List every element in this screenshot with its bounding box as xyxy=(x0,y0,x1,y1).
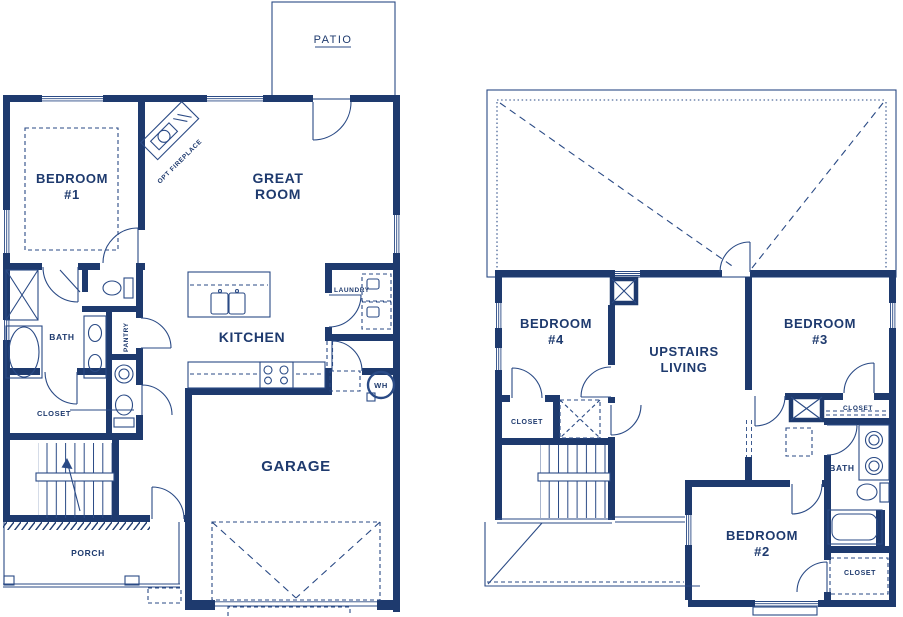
floor-plan-svg: PATIO BEDROOM #1 GREAT ROOM OPT FIREPLAC… xyxy=(0,0,903,617)
bath-label: BATH xyxy=(49,332,74,342)
laundry-label: LAUNDRY xyxy=(334,287,370,294)
upstairs-living-label: UPSTAIRS xyxy=(649,344,719,359)
closet-bedroom3-label: CLOSET xyxy=(843,405,873,412)
closet-bedroom4-label: CLOSET xyxy=(511,419,543,426)
bedroom2-number: #2 xyxy=(754,544,770,559)
bedroom3-number: #3 xyxy=(812,332,828,347)
bedroom4-number: #4 xyxy=(548,332,564,347)
upstairs-bath-label: BATH xyxy=(829,463,854,473)
great-room-label2: ROOM xyxy=(255,186,301,202)
bedroom2-step xyxy=(753,607,817,615)
bedroom1-label: BEDROOM xyxy=(36,171,108,186)
first-floor-plan: PATIO BEDROOM #1 GREAT ROOM OPT FIREPLAC… xyxy=(3,2,400,616)
porch-area xyxy=(3,522,181,603)
closet-bedroom2-label: CLOSET xyxy=(844,570,876,577)
roof-open-area xyxy=(487,90,896,277)
second-floor-plan: BEDROOM #4 UPSTAIRS LIVING BEDROOM #3 CL… xyxy=(485,90,896,615)
upstairs-bath-fixtures xyxy=(786,411,889,594)
upstairs-living-label2: LIVING xyxy=(661,360,708,375)
patio-outline xyxy=(272,2,395,99)
porch-label: PORCH xyxy=(71,548,105,558)
patio-label: PATIO xyxy=(314,34,353,46)
bedroom3-label: BEDROOM xyxy=(784,316,856,331)
closet-label: CLOSET xyxy=(37,409,71,418)
lower-roof-area xyxy=(485,522,700,586)
bedroom4-label: BEDROOM xyxy=(520,316,592,331)
garage-label: GARAGE xyxy=(261,458,330,475)
pantry-label: PANTRY xyxy=(123,322,130,352)
water-heater-label: WH xyxy=(374,381,388,390)
bedroom2-label: BEDROOM xyxy=(726,528,798,543)
floor-plan-image: PATIO BEDROOM #1 GREAT ROOM OPT FIREPLAC… xyxy=(0,0,903,617)
first-floor-stairs xyxy=(36,443,114,518)
bedroom1-number: #1 xyxy=(64,187,80,202)
kitchen-label: KITCHEN xyxy=(219,329,285,345)
great-room-label: GREAT xyxy=(253,170,304,186)
second-floor-stairs xyxy=(497,445,685,523)
